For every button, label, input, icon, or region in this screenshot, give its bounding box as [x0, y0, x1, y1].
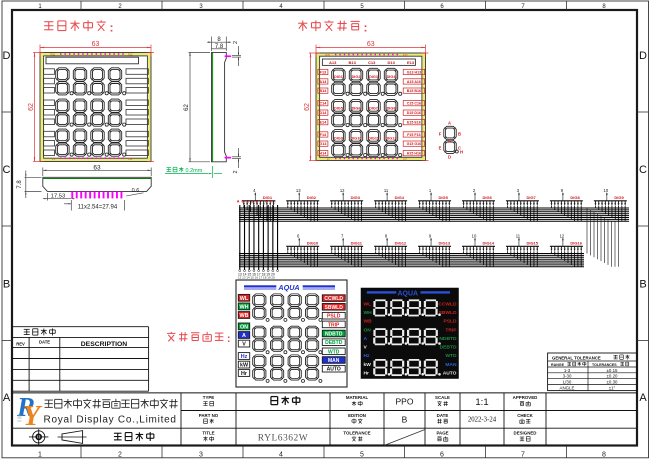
svg-text:DIG12: DIG12: [386, 136, 397, 140]
svg-text:4: 4: [279, 452, 283, 459]
svg-text:B: B: [402, 415, 408, 425]
svg-text:12 13 14 15 16 17 18 19 20: 12 13 14 15 16 17 18 19 20: [238, 276, 275, 280]
svg-text:Hr: Hr: [364, 370, 370, 376]
svg-text:GENERAL TOLERANCE: GENERAL TOLERANCE: [552, 355, 601, 360]
svg-text:Royal Display Co.,Limited: Royal Display Co.,Limited: [44, 414, 177, 425]
svg-text:DATE: DATE: [39, 340, 50, 345]
svg-text:DIG8: DIG8: [387, 106, 396, 110]
svg-text:DIG8: DIG8: [570, 195, 580, 200]
svg-text:D13: D13: [388, 60, 396, 65]
svg-text:A15 A16: A15 A16: [407, 80, 421, 84]
svg-text:REV: REV: [16, 341, 25, 346]
svg-text:63: 63: [367, 41, 375, 48]
svg-text:ON: ON: [364, 327, 372, 333]
svg-text:7.8: 7.8: [215, 44, 224, 50]
svg-text:P12: P12: [128, 53, 133, 57]
svg-text:PAGE: PAGE: [436, 431, 448, 436]
svg-text:B: B: [242, 200, 245, 204]
svg-text:±0.20: ±0.20: [607, 374, 619, 379]
svg-text:3-30: 3-30: [563, 374, 572, 379]
svg-text:L/30: L/30: [563, 380, 572, 385]
svg-text:DIG3: DIG3: [369, 75, 378, 79]
svg-text:B14: B14: [319, 89, 327, 93]
svg-text:63: 63: [92, 41, 100, 48]
svg-text:A: A: [3, 392, 11, 404]
svg-text:F15 F16: F15 F16: [407, 133, 420, 137]
svg-text:CHECK: CHECK: [517, 413, 533, 418]
svg-text:DIG14: DIG14: [483, 240, 495, 245]
svg-text:WL: WL: [364, 302, 372, 308]
svg-text:A14: A14: [319, 80, 327, 84]
svg-text:DIG13: DIG13: [439, 240, 451, 245]
svg-text:APPROVED: APPROVED: [513, 395, 538, 400]
svg-text:C: C: [639, 164, 647, 176]
svg-text:AQUA: AQUA: [397, 290, 418, 297]
svg-text:DIG4: DIG4: [387, 75, 397, 79]
svg-text:13: 13: [296, 188, 301, 193]
svg-text:P20: P20: [50, 53, 55, 57]
svg-text::: :: [227, 333, 231, 345]
svg-text:WB: WB: [364, 319, 373, 325]
svg-text:B: B: [458, 132, 461, 137]
svg-text:MAN: MAN: [328, 358, 340, 364]
svg-text:7: 7: [521, 452, 525, 459]
svg-text:SCALE: SCALE: [435, 395, 450, 400]
svg-text:TOLERANCE: TOLERANCE: [343, 431, 370, 436]
svg-text:Hz: Hz: [364, 353, 371, 359]
svg-text:WL: WL: [240, 296, 249, 302]
svg-text:P11: P11: [128, 157, 133, 161]
svg-text:A: A: [364, 336, 368, 342]
svg-text:2: 2: [233, 170, 239, 173]
svg-text:C14: C14: [319, 102, 327, 106]
svg-text:D: D: [639, 50, 647, 62]
svg-text:RYL6362W: RYL6362W: [258, 434, 308, 444]
svg-text:P11: P11: [403, 158, 408, 162]
svg-text:E: E: [256, 200, 259, 204]
svg-text:E: E: [439, 146, 442, 151]
svg-text:C: C: [3, 164, 11, 176]
svg-text:12: 12: [560, 233, 565, 238]
svg-text:DIG6: DIG6: [483, 195, 493, 200]
svg-text:D: D: [251, 200, 254, 204]
svg-text:AUTO: AUTO: [327, 367, 341, 373]
svg-text:NDBTD: NDBTD: [325, 332, 343, 338]
svg-text:A: A: [237, 200, 240, 204]
svg-text:F13: F13: [320, 71, 327, 75]
svg-text:E13: E13: [407, 60, 415, 65]
svg-text:PART NO: PART NO: [199, 413, 219, 418]
svg-text:A: A: [448, 121, 451, 126]
svg-text:1:1: 1:1: [475, 397, 488, 408]
svg-text:Y: Y: [23, 401, 43, 432]
svg-text:DEBTD: DEBTD: [440, 345, 457, 351]
svg-text:3: 3: [199, 452, 203, 459]
svg-text:TITLE: TITLE: [202, 431, 214, 436]
svg-text:DIG9: DIG9: [334, 136, 343, 140]
svg-text:±0.30: ±0.30: [607, 380, 619, 385]
svg-text:G: G: [265, 200, 268, 204]
svg-text:G14: G14: [319, 142, 327, 146]
svg-text:AUTO: AUTO: [443, 370, 457, 376]
svg-text:5: 5: [360, 452, 364, 459]
svg-text:ANGLE: ANGLE: [560, 386, 575, 391]
svg-text:B: B: [639, 279, 646, 291]
svg-text:Hz: Hz: [241, 354, 248, 360]
svg-text:D15 D16: D15 D16: [407, 111, 421, 115]
svg-text:8: 8: [602, 452, 606, 459]
svg-text:P12: P12: [403, 53, 408, 57]
svg-text:DIG5: DIG5: [439, 195, 449, 200]
svg-text:62: 62: [28, 103, 35, 111]
svg-text:DIG11: DIG11: [351, 240, 363, 245]
svg-text:DIG4: DIG4: [395, 195, 405, 200]
svg-text:B15 B16: B15 B16: [407, 89, 421, 93]
svg-text:D: D: [448, 155, 451, 160]
svg-text:DIG11: DIG11: [368, 136, 379, 140]
svg-text:TOLERANCES: TOLERANCES: [592, 363, 617, 367]
svg-text:A13: A13: [329, 60, 337, 65]
svg-text:0.6: 0.6: [132, 188, 140, 194]
svg-text:PPO: PPO: [396, 397, 414, 407]
svg-text:1: 1: [38, 452, 42, 459]
svg-text:CCWLD: CCWLD: [438, 302, 457, 308]
svg-text:7.8: 7.8: [17, 180, 23, 189]
svg-text:kW: kW: [364, 362, 372, 368]
svg-text:F: F: [439, 132, 442, 137]
svg-text:DIG10: DIG10: [307, 240, 319, 245]
svg-text:WTD: WTD: [445, 353, 457, 359]
svg-text:DIG6: DIG6: [352, 106, 361, 110]
svg-text:WB: WB: [240, 313, 249, 319]
svg-text:DIG7: DIG7: [369, 106, 378, 110]
svg-text:A: A: [242, 333, 246, 339]
svg-text:DIG3: DIG3: [351, 195, 361, 200]
svg-text:C: C: [246, 200, 249, 204]
svg-text:G: G: [448, 139, 451, 144]
svg-text:10: 10: [472, 233, 477, 238]
svg-text:B13: B13: [349, 60, 357, 65]
svg-text:H: H: [270, 200, 273, 204]
svg-text:AQUA: AQUA: [277, 283, 299, 292]
svg-text:DIG12: DIG12: [395, 240, 407, 245]
svg-text:C13: C13: [368, 60, 376, 65]
svg-text:SBWLD: SBWLD: [439, 310, 457, 316]
svg-text:D14: D14: [319, 111, 327, 115]
svg-text:PSLD: PSLD: [443, 319, 457, 325]
svg-text:WH: WH: [364, 310, 373, 316]
svg-text:V: V: [242, 342, 246, 348]
svg-text:DIG5: DIG5: [334, 106, 343, 110]
svg-text:NDBTD: NDBTD: [439, 336, 457, 342]
svg-text:0.2mm: 0.2mm: [186, 168, 203, 174]
svg-text:RANGE: RANGE: [551, 363, 565, 367]
svg-text:6: 6: [440, 452, 444, 459]
svg-text:2: 2: [118, 452, 122, 459]
svg-text:MAN: MAN: [445, 362, 457, 368]
svg-text:EDITION: EDITION: [348, 413, 366, 418]
svg-text:17.53: 17.53: [51, 194, 66, 200]
svg-text:SBWLD: SBWLD: [325, 305, 344, 311]
svg-text:WH: WH: [240, 305, 249, 311]
svg-text:H15 H16: H15 H16: [407, 152, 421, 156]
svg-text:62: 62: [184, 104, 190, 111]
svg-text:TYPE: TYPE: [203, 395, 215, 400]
svg-text:DIG7: DIG7: [526, 195, 536, 200]
svg-text:63: 63: [93, 164, 101, 171]
svg-text:±1°: ±1°: [609, 386, 616, 391]
svg-text:P1: P1: [52, 157, 56, 161]
svg-text:B: B: [3, 279, 10, 291]
svg-text:12: 12: [340, 188, 345, 193]
svg-text:TRIP: TRIP: [328, 322, 340, 328]
svg-text:2: 2: [233, 41, 239, 44]
svg-text:E15 E16: E15 E16: [407, 121, 421, 125]
svg-text:D: D: [3, 50, 11, 62]
svg-text:62: 62: [304, 103, 311, 111]
svg-text:I: I: [274, 200, 275, 204]
svg-text:C15 C16: C15 C16: [407, 102, 421, 106]
svg-text:11: 11: [384, 188, 389, 193]
svg-text:kW: kW: [240, 363, 249, 369]
svg-text:PSLD: PSLD: [327, 314, 341, 320]
svg-text:2022-3-24: 2022-3-24: [468, 417, 497, 424]
svg-text:DIG10: DIG10: [351, 136, 362, 140]
svg-text:H: H: [460, 150, 463, 155]
svg-text:ON: ON: [240, 325, 248, 331]
svg-text:DESIGNED: DESIGNED: [514, 431, 537, 436]
svg-text:MATERIAL: MATERIAL: [346, 395, 369, 400]
svg-text:P1: P1: [327, 158, 331, 162]
svg-text:F14: F14: [320, 133, 327, 137]
svg-text:±0.15: ±0.15: [607, 368, 619, 373]
svg-text:11: 11: [516, 233, 521, 238]
svg-text:10: 10: [604, 188, 609, 193]
svg-text:DIG2: DIG2: [307, 195, 317, 200]
svg-text:DIG1: DIG1: [334, 75, 343, 79]
svg-text:TRIP: TRIP: [445, 327, 457, 333]
svg-text:CCWLD: CCWLD: [324, 296, 343, 302]
svg-text::: :: [364, 21, 368, 35]
svg-text:DIG16: DIG16: [570, 240, 582, 245]
svg-text:DATE: DATE: [437, 413, 449, 418]
svg-text:E14: E14: [320, 121, 328, 125]
svg-text::: :: [110, 21, 114, 35]
svg-text:G13 H13: G13 H13: [407, 71, 421, 75]
svg-text:11x2.54=27.94: 11x2.54=27.94: [78, 204, 118, 210]
svg-text:DIG9: DIG9: [614, 195, 624, 200]
svg-text:WTD: WTD: [328, 349, 340, 355]
svg-text:DIG2: DIG2: [352, 75, 361, 79]
svg-text:DEBTD: DEBTD: [325, 340, 343, 346]
svg-text:DIG15: DIG15: [526, 240, 538, 245]
svg-text:1-3: 1-3: [564, 368, 571, 373]
svg-text:G15 G16: G15 G16: [407, 142, 422, 146]
svg-text:A: A: [639, 392, 647, 404]
svg-text:H14: H14: [319, 152, 327, 156]
svg-text:DESCRIPTION: DESCRIPTION: [81, 341, 128, 348]
svg-text:P20: P20: [325, 53, 330, 57]
svg-text:Hr: Hr: [241, 371, 248, 377]
